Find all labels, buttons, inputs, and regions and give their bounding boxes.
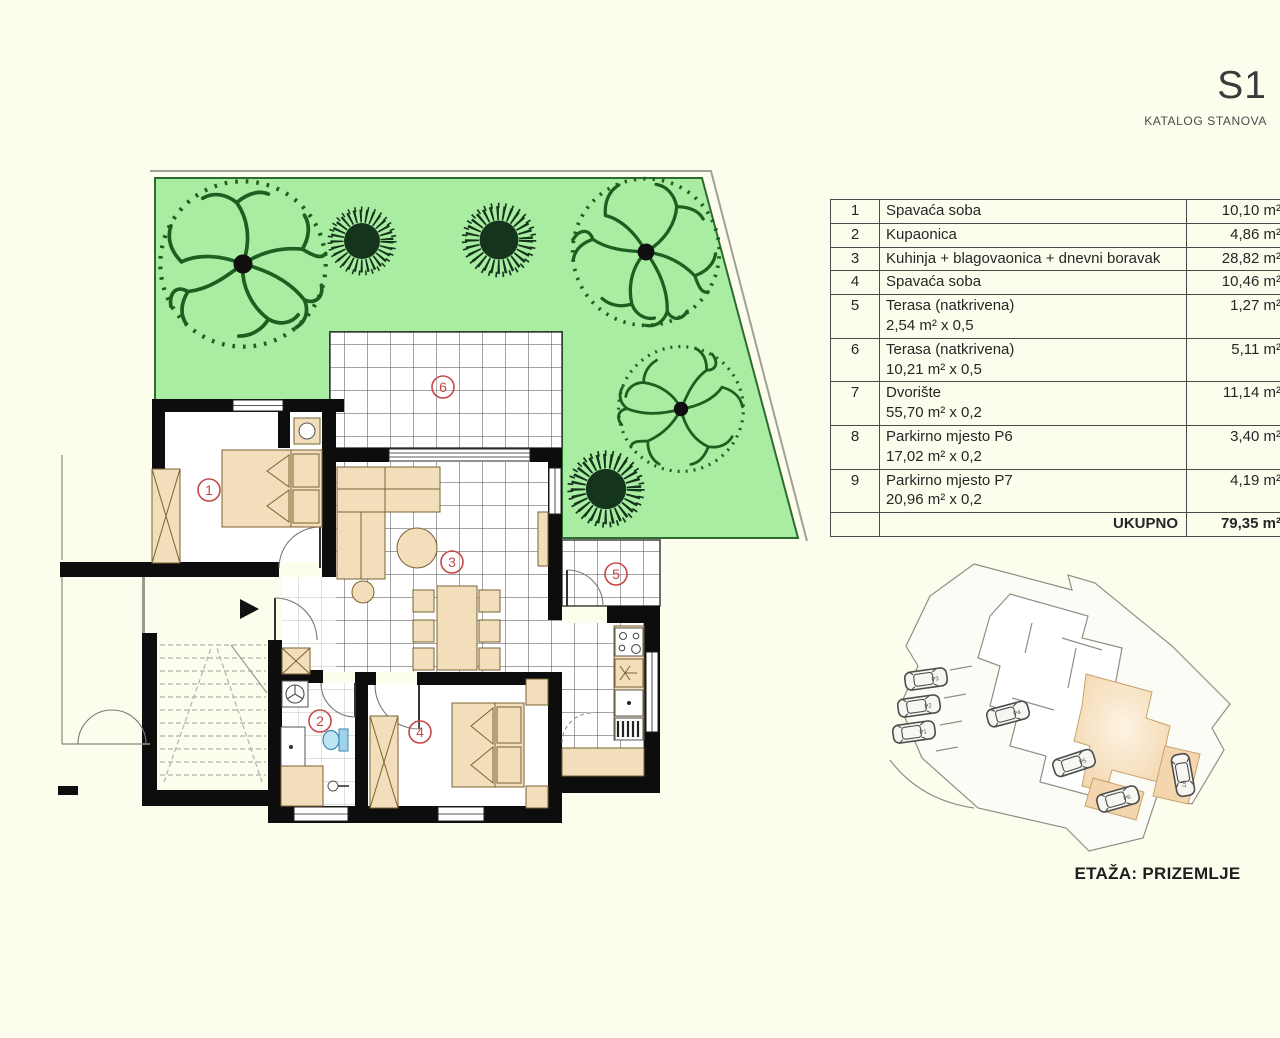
total-label: UKUPNO [880, 513, 1187, 537]
table-row: 4 Spavaća soba 10,46 m² [831, 271, 1280, 295]
row-description: Spavaća soba [880, 200, 1187, 224]
row-number: 8 [831, 425, 880, 469]
room-marker-label: 5 [612, 566, 620, 582]
row-area: 11,14 m² [1187, 382, 1280, 426]
row-description: Spavaća soba [880, 271, 1187, 295]
page-subtitle: KATALOG STANOVA [1144, 114, 1267, 128]
row-area: 1,27 m² [1187, 295, 1280, 339]
table-row: 2 Kupaonica 4,86 m² [831, 223, 1280, 247]
table-row: 1 Spavaća soba 10,10 m² [831, 200, 1280, 224]
row-description: Terasa (natkrivena)10,21 m² x 0,5 [880, 338, 1187, 382]
room-marker: 2 [309, 710, 331, 732]
table-row: 9 Parkirno mjesto P720,96 m² x 0,2 4,19 … [831, 469, 1280, 513]
floor-caption: ETAŽA: PRIZEMLJE [1045, 864, 1270, 884]
room-marker: 4 [409, 721, 431, 743]
site-plan: P3 P2 P1 P4 P5 P6 P7 [890, 564, 1230, 851]
row-area: 4,86 m² [1187, 223, 1280, 247]
page-title: S1 [1217, 66, 1267, 105]
row-description: Kuhinja + blagovaonica + dnevni boravak [880, 247, 1187, 271]
room-marker-label: 2 [316, 713, 324, 729]
row-area: 4,19 m² [1187, 469, 1280, 513]
row-number: 6 [831, 338, 880, 382]
row-description: Terasa (natkrivena)2,54 m² x 0,5 [880, 295, 1187, 339]
room-marker: 3 [441, 551, 463, 573]
row-number: 7 [831, 382, 880, 426]
area-table: 1 Spavaća soba 10,10 m² 2 Kupaonica 4,86… [830, 199, 1280, 537]
table-total-row: UKUPNO 79,35 m² [831, 513, 1280, 537]
room-marker: 6 [432, 376, 454, 398]
room-marker: 1 [198, 479, 220, 501]
table-row: 5 Terasa (natkrivena)2,54 m² x 0,5 1,27 … [831, 295, 1280, 339]
table-row: 8 Parkirno mjesto P617,02 m² x 0,2 3,40 … [831, 425, 1280, 469]
row-number: 1 [831, 200, 880, 224]
room-marker-label: 6 [439, 379, 447, 395]
entry-arrow-icon [240, 599, 259, 619]
row-number: 4 [831, 271, 880, 295]
row-area: 3,40 m² [1187, 425, 1280, 469]
room-marker-label: 1 [205, 482, 213, 498]
room-marker-label: 4 [416, 724, 424, 740]
row-number: 2 [831, 223, 880, 247]
row-area: 28,82 m² [1187, 247, 1280, 271]
table-row: 3 Kuhinja + blagovaonica + dnevni borava… [831, 247, 1280, 271]
room-marker-label: 3 [448, 554, 456, 570]
row-description: Dvorište55,70 m² x 0,2 [880, 382, 1187, 426]
table-row: 7 Dvorište55,70 m² x 0,2 11,14 m² [831, 382, 1280, 426]
room-marker: 5 [605, 563, 627, 585]
row-description: Kupaonica [880, 223, 1187, 247]
row-area: 5,11 m² [1187, 338, 1280, 382]
neighbour-lines [62, 455, 150, 744]
total-area: 79,35 m² [1187, 513, 1280, 537]
row-description: Parkirno mjesto P617,02 m² x 0,2 [880, 425, 1187, 469]
row-number: 5 [831, 295, 880, 339]
row-area: 10,46 m² [1187, 271, 1280, 295]
row-number: 9 [831, 469, 880, 513]
row-description: Parkirno mjesto P720,96 m² x 0,2 [880, 469, 1187, 513]
row-number: 3 [831, 247, 880, 271]
table-row: 6 Terasa (natkrivena)10,21 m² x 0,5 5,11… [831, 338, 1280, 382]
row-area: 10,10 m² [1187, 200, 1280, 224]
